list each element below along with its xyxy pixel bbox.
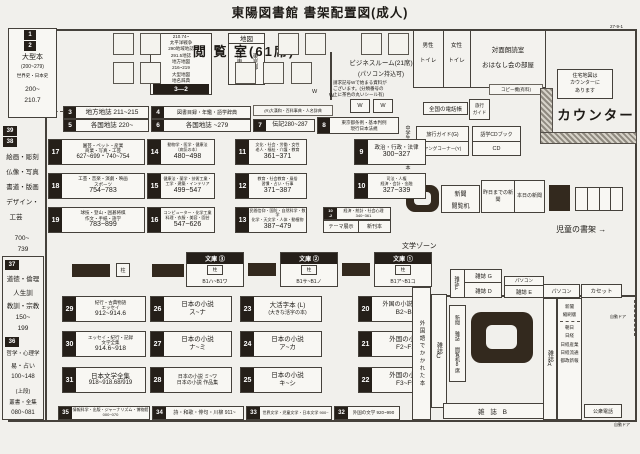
bunko-range: B1ハ~B1ワ bbox=[187, 276, 243, 286]
dark-shelf bbox=[248, 263, 276, 276]
reading-desk bbox=[291, 62, 312, 84]
magazine-f-label: 雑誌F bbox=[450, 269, 465, 298]
shelf-range: ナ~ミ bbox=[189, 344, 206, 352]
shelf-range: 914.6~918 bbox=[95, 345, 126, 353]
shelf-number: 5 bbox=[64, 120, 76, 131]
today-news: 本日の新聞 bbox=[515, 181, 544, 212]
shelf-number: 29 bbox=[63, 297, 76, 321]
shelf-number: 39 bbox=[3, 126, 17, 136]
shelf-number: 10 bbox=[355, 174, 368, 198]
shelf-label: (大きな活字の本) bbox=[268, 310, 306, 316]
shelf-box-19: 19 球技・登山・囲碁将棋作文・手紙・語学783~899 bbox=[48, 207, 145, 233]
shelf-subjects: 教訓・宗教 bbox=[3, 300, 43, 309]
shelf-box-31: 31 日本文学全集918~918.68/919 bbox=[62, 367, 146, 393]
shelf-range: 210.7 bbox=[13, 96, 52, 104]
shelf-box-9: 9 政治・行政・法律300~327 bbox=[354, 139, 426, 165]
bunko-shelf-2: 文庫 ② 柱 B1サ~B1ノ bbox=[280, 252, 338, 287]
shelf-range: (200~279) bbox=[9, 63, 56, 70]
shelf-box-34: 34 詩・和歌・俳句・川柳 911~ bbox=[152, 406, 244, 420]
shelf-range: 754~783 bbox=[89, 187, 116, 195]
newspaper-item: 日経産業 bbox=[561, 342, 579, 347]
shelf-number: 12 bbox=[236, 174, 249, 198]
dark-shelf bbox=[152, 264, 184, 277]
shelf-number: 28 bbox=[151, 368, 164, 392]
shelf-label: 各国地誌 220~ bbox=[76, 120, 148, 131]
dashed-line bbox=[560, 321, 580, 322]
shelf-number: 27 bbox=[151, 332, 164, 356]
shelf-range: 200~ bbox=[13, 85, 52, 93]
reading-desk bbox=[361, 33, 382, 55]
shelf-number: 31 bbox=[63, 368, 76, 392]
magazine-c-shelf: 雑誌C bbox=[431, 294, 447, 408]
shelf-number: 32 bbox=[335, 407, 348, 419]
auto-door bbox=[634, 300, 635, 336]
shelf-range: 547~626 bbox=[174, 221, 201, 229]
shelf-subjects: 書道・版画 bbox=[1, 181, 44, 190]
wall bbox=[8, 420, 637, 422]
reading-desk bbox=[140, 62, 161, 84]
cd-shelf: 語学CDブック CD bbox=[472, 126, 521, 156]
shelf-subjects: 易・占い bbox=[2, 361, 44, 369]
shelf-label: 情報科学・出版・ジャーナリズム・博物館 000~070 bbox=[72, 407, 149, 419]
shelf-label: 各国地誌 ~279 bbox=[164, 120, 250, 131]
pillar-hole bbox=[486, 325, 517, 349]
shelf-subjects: 人生訓 bbox=[3, 287, 43, 296]
pillar-marker: 柱 bbox=[207, 265, 223, 275]
bunko-shelf-1: 文庫 ① 柱 B1ア~B1コ bbox=[374, 252, 432, 287]
shelf-subjects: 仏像・写真 bbox=[1, 166, 44, 175]
children-shelf-label: 児童の書架 bbox=[556, 225, 596, 234]
shelf-number: 35 bbox=[59, 407, 72, 419]
shelf-number: 14 bbox=[148, 140, 161, 164]
empty-shelf-cell bbox=[599, 188, 611, 210]
shelf-box-13: 13 民間信仰・国防・自然科学・数学化学・天文学・人体・動植物387~479 bbox=[235, 207, 307, 233]
newspaper-list-shelf: 新聞 縮刷版 朝日 日経 日経産業 日経流通 都政新報 bbox=[557, 298, 582, 420]
auto-door-label: 自動ドア bbox=[614, 422, 630, 428]
pay-phone: 公衆電話 bbox=[584, 404, 622, 418]
shelf-label: 伝記280~287 bbox=[266, 120, 314, 131]
service-room: 対面朗読室 おはなし会の部屋 bbox=[470, 38, 546, 74]
shelf-label: 大型本 bbox=[10, 52, 55, 61]
shelf-label: 日本の小説 bbox=[271, 372, 304, 380]
room-label: トイレ bbox=[420, 56, 437, 64]
business-room-sub: (パソコン持込可) bbox=[338, 69, 424, 77]
bunko-range: B1ア~B1コ bbox=[375, 276, 431, 286]
magazine-a-shelf: 雑誌A bbox=[543, 298, 557, 420]
pc-label: パソコン bbox=[505, 277, 543, 286]
shelf-range: 783~899 bbox=[89, 221, 116, 229]
empty-shelf bbox=[575, 187, 623, 211]
note-line: あります bbox=[575, 88, 595, 96]
shelf-number: 21 bbox=[359, 332, 372, 356]
library-floor-map: 東陽図書館 書架配置図(成人) 27-9-1 1 2 大型本 (200~279)… bbox=[0, 0, 640, 454]
shelf-subjects: 哲学・心理学 bbox=[2, 349, 44, 357]
shelf-label: 日本の小説 bbox=[271, 336, 304, 344]
shelf-box-6: 6 各国地誌 ~279 bbox=[151, 119, 251, 132]
shelf-range: 912~914.6 bbox=[95, 310, 126, 318]
room-label: おはなし会の部屋 bbox=[482, 59, 534, 69]
shelf-range: 499~547 bbox=[174, 187, 201, 195]
shelf-range: 371~387 bbox=[264, 187, 291, 195]
shelf-range: 080~081 bbox=[2, 409, 44, 417]
shelf-label: 現行日本法規 bbox=[351, 126, 378, 131]
shelf-range: 150~ bbox=[3, 313, 43, 322]
shelf-box-8: 8 東京都条例・基本判例 現行日本法規 bbox=[317, 117, 399, 134]
shelf-number: 25 bbox=[241, 368, 254, 392]
male-toilet: 男性 トイレ bbox=[413, 34, 443, 70]
shelf-subjects: デザイン・ bbox=[1, 196, 44, 205]
w-shelf: W bbox=[350, 99, 370, 113]
shelf-label: 日本の小説 bbox=[181, 336, 214, 344]
shelf-number: 34 bbox=[153, 407, 166, 419]
shelf-box-23: 23 大活字本 (L)(大きな活字の本) bbox=[240, 296, 322, 322]
newspaper-item: 縮刷版 bbox=[563, 312, 577, 317]
counter-label: カウンター bbox=[552, 105, 640, 123]
theme-display-label: テーマ展示 bbox=[324, 221, 359, 232]
auto-door-label: 自動ドア bbox=[610, 314, 626, 320]
shelf-range: 100~148 bbox=[2, 373, 44, 381]
shelf-box-10-2: 10-2 経済・統計・社会心理340~361 bbox=[323, 207, 391, 220]
shelf-box-24: 24 日本の小説ア~カ bbox=[240, 331, 322, 357]
shelf-label: 外国の文学 920~990 bbox=[348, 407, 399, 419]
reference-shelf-label: (R)大漢和・百科事典・人名辞典 bbox=[253, 105, 333, 116]
reading-desk bbox=[113, 33, 134, 55]
reading-desk bbox=[235, 62, 256, 84]
reading-desk bbox=[140, 33, 161, 55]
shelf-number: 30 bbox=[63, 332, 76, 356]
arrow-icon: → bbox=[598, 225, 606, 234]
magazine-g-label: 雑誌 G bbox=[465, 269, 502, 283]
shelf-number: 26 bbox=[151, 297, 164, 321]
reading-desk bbox=[388, 33, 409, 55]
shelf-subjects: 政治・行政・法律 bbox=[374, 145, 418, 152]
shelf-number: 4 bbox=[152, 107, 164, 118]
shelf-range: ス~ナ bbox=[189, 309, 206, 317]
shelf-label: 世界文学・児童文学・日本文学 900~ bbox=[260, 407, 331, 419]
shelf-box-32: 32 外国の文学 920~990 bbox=[334, 406, 400, 420]
foreign-books-shelf: 外国語でかかれた本 bbox=[412, 287, 431, 420]
shelf-box-4: 4 図書目録・年鑑・語学辞典 bbox=[151, 106, 251, 119]
newspaper-item: 都政新報 bbox=[561, 358, 579, 363]
shelf-box-29: 29 紀行・古典物語エッセイ912~914.6 bbox=[62, 296, 146, 322]
literature-zone-label: 文学ゾーン bbox=[402, 241, 437, 251]
shelf-number: 33 bbox=[247, 407, 260, 419]
shelf-subjects: 道徳・倫理 bbox=[3, 273, 43, 282]
shelf-box-25: 25 日本の小説キ~シ bbox=[240, 367, 322, 393]
shelf-number: 10-2 bbox=[324, 208, 337, 219]
page-title: 東陽図書館 書架配置図(成人) bbox=[175, 3, 465, 19]
shelf-range: 327~339 bbox=[383, 187, 410, 195]
shelf-number: 36 bbox=[5, 337, 19, 347]
shelf-range: 199 bbox=[3, 324, 43, 333]
shelf-number: 15 bbox=[148, 174, 161, 198]
newspaper-item: 朝日 bbox=[565, 325, 574, 330]
shelf-number: 1 bbox=[24, 30, 36, 40]
shelf-range: 627~699・740~754 bbox=[76, 154, 129, 161]
pillar-marker: 柱 bbox=[395, 265, 411, 275]
shelf-box-35: 35 情報科学・出版・ジャーナリズム・博物館 000~070 bbox=[58, 406, 150, 420]
shelf-range: 300~327 bbox=[383, 151, 410, 159]
shelf-number: 7 bbox=[254, 120, 266, 131]
newspaper-item: 新聞 bbox=[565, 304, 574, 309]
shelf-number: 9 bbox=[355, 140, 368, 164]
newspaper-rack: 新聞 雑誌 閲覧机8席 bbox=[449, 305, 466, 382]
bunko-title: 文庫 ③ bbox=[187, 253, 243, 264]
magazine-e-label: 雑誌 E bbox=[505, 286, 543, 297]
shelf-number: 11 bbox=[236, 140, 249, 164]
room-label: 男性 bbox=[422, 41, 433, 49]
shelf-range: 387~479 bbox=[264, 223, 291, 231]
yesterday-news: 昨日までの新聞 bbox=[482, 181, 515, 212]
w-mark: W bbox=[312, 89, 317, 95]
reading-desk bbox=[113, 62, 134, 84]
shelf-number: 8 bbox=[318, 118, 330, 133]
housing-map-note: 住宅地図は カウンターに あります bbox=[557, 69, 613, 99]
copier: コピー機(有料) bbox=[489, 84, 543, 95]
dark-shelf bbox=[549, 185, 570, 211]
shelf-range: 700~ bbox=[5, 234, 39, 243]
cassette-shelf: カセット bbox=[581, 284, 622, 298]
empty-shelf-cell bbox=[587, 188, 599, 210]
shelf-range: 739 bbox=[8, 245, 38, 254]
shelf-number: 24 bbox=[241, 332, 254, 356]
shelf-subjects: 絵画・彫刻 bbox=[1, 151, 44, 160]
bunko-shelf-3: 文庫 ③ 柱 B1ハ~B1ワ bbox=[186, 252, 244, 287]
theme-display-shelf: テーマ展示 新刊本 bbox=[323, 220, 391, 233]
shelf-range: ア~カ bbox=[279, 344, 296, 352]
shelf-box-17: 17 園芸・ペット・産業商業・写真・工芸627~699・740~754 bbox=[48, 139, 145, 165]
shelf-number: 18 bbox=[49, 174, 62, 198]
bunko-title: 文庫 ① bbox=[375, 253, 431, 264]
w-shelf: W bbox=[373, 99, 393, 113]
shelf-label: 大活字本 (L) bbox=[270, 302, 306, 310]
shelf-box-10: 10 司法・人権経済・会計・金融327~339 bbox=[354, 173, 426, 199]
pillar-marker: 柱 bbox=[116, 263, 130, 277]
shelf-number: 22 bbox=[359, 368, 372, 392]
note-line: カウンターに bbox=[570, 80, 600, 88]
shelf-box-15: 15 健康法・薬学・技術工業・工学・建築・インテリア499~547 bbox=[147, 173, 215, 199]
magazine-b-shelf: 雑 誌 B bbox=[443, 403, 544, 419]
shelf-box-14: 14 動物学・医学・健康法〔病気の本〕480~498 bbox=[147, 139, 215, 165]
shelf-label: 日本の小説 作品集 bbox=[177, 380, 218, 386]
shelf-number: 16 bbox=[148, 208, 161, 232]
shelf-number-badge: 3—2 bbox=[153, 84, 209, 94]
shelf-range: 340~361 bbox=[356, 214, 372, 219]
shelf-label: 図書目録・年鑑・語学辞典 bbox=[164, 107, 250, 118]
shelf-range: 480~498 bbox=[174, 153, 201, 161]
shelf-number: 37 bbox=[5, 260, 19, 270]
newspaper-shelf: 昨日までの新聞 本日の新聞 bbox=[481, 180, 545, 213]
shelf-range: 361~371 bbox=[264, 153, 291, 161]
reading-desk bbox=[305, 33, 326, 55]
shelf-label: 日本文学全集 bbox=[91, 373, 130, 381]
counter-wall bbox=[540, 132, 637, 144]
note-line: 上に茶色の丸いシール有) bbox=[333, 92, 431, 98]
shelf-label: 詩・和歌・俳句・川柳 911~ bbox=[166, 407, 243, 419]
newspaper-item: 日経流通 bbox=[561, 350, 579, 355]
shelf-number-line: -2 bbox=[329, 214, 333, 218]
shelf-range: キ~シ bbox=[279, 380, 296, 388]
shelf-number: 6 bbox=[152, 120, 164, 131]
shelf-subjects: 工芸 bbox=[1, 211, 31, 220]
magazine-e-shelf: パソコン 雑誌 E bbox=[504, 276, 544, 298]
shelf-box-5: 5 各国地誌 220~ bbox=[63, 119, 149, 132]
shelf-box-26: 26 日本の小説ス~ナ bbox=[150, 296, 232, 322]
room-label: 対面朗読室 bbox=[492, 44, 525, 54]
shelf-box-18: 18 工芸・音楽・演劇・映画スポーツ754~783 bbox=[48, 173, 145, 199]
empty-shelf-cell bbox=[610, 188, 622, 210]
shelf-subjects: 叢書・全集 bbox=[2, 398, 44, 406]
shelf-label: 地方地誌 211~215 bbox=[76, 107, 148, 118]
shelf-number: 20 bbox=[359, 297, 372, 321]
pc-shelf: パソコン bbox=[543, 284, 580, 298]
shelf-box-33: 33 世界文学・児童文学・日本文学 900~ bbox=[246, 406, 332, 420]
newspaper-item: 日経 bbox=[565, 333, 574, 338]
travel-guide-mini: 旅行 ガイド bbox=[469, 99, 490, 120]
shelf-range: 918~918.68/919 bbox=[89, 380, 133, 387]
label-line: ガイド bbox=[473, 110, 487, 116]
shelf-box-12: 12 教育・社会教育・風俗習慣・占い・行事371~387 bbox=[235, 173, 307, 199]
shelf-box-7: 7 伝記280~287 bbox=[253, 119, 315, 132]
dark-shelf bbox=[342, 263, 370, 276]
shelf-label: 日本の小説 bbox=[181, 301, 214, 309]
shelf-box-3: 3 地方地誌 211~215 bbox=[63, 106, 149, 119]
room-label: トイレ bbox=[448, 56, 465, 64]
pillar-marker: 柱 bbox=[301, 265, 317, 275]
shelf-number: 38 bbox=[3, 137, 17, 147]
bunko-range: B1サ~B1ノ bbox=[281, 276, 337, 286]
newspaper-desk: 新聞 閲覧机 bbox=[441, 185, 480, 213]
female-toilet: 女性 トイレ bbox=[443, 34, 470, 70]
room-label: 女性 bbox=[451, 41, 462, 49]
shelf-number: 19 bbox=[49, 208, 62, 232]
label-line: 閲覧机 bbox=[451, 201, 469, 210]
cd-book-label: 語学CDブック bbox=[473, 127, 520, 142]
reading-desk bbox=[263, 62, 284, 84]
shelf-box-16: 16 コンピューター・化学工業料理・衣服・美容・園芸547~626 bbox=[147, 207, 215, 233]
magazine-d-label: 雑誌 D bbox=[465, 283, 502, 298]
cd-label: CD bbox=[473, 142, 520, 155]
shelf-box-27: 27 日本の小説ナ~ミ bbox=[150, 331, 232, 357]
bunko-title: 文庫 ② bbox=[281, 253, 337, 264]
dark-shelf bbox=[72, 264, 110, 277]
shelf-number: 23 bbox=[241, 297, 254, 321]
shelf-subjects: 世界史・日本史 bbox=[8, 73, 57, 79]
reading-desk bbox=[278, 33, 299, 55]
new-books-label: 新刊本 bbox=[359, 221, 390, 232]
shelf-box-11: 11 文化・社会・労働・女性老人・福祉・介護・教育361~371 bbox=[235, 139, 307, 165]
wall bbox=[45, 100, 47, 421]
shelf-number: 3 bbox=[64, 107, 76, 118]
shelf-number: 17 bbox=[49, 140, 62, 164]
empty-shelf-cell bbox=[576, 188, 587, 210]
shelf-note: (上段) bbox=[2, 387, 44, 395]
shelf-box-30: 30 エッセイ・紀行・記録文学全集914.6~918 bbox=[62, 331, 146, 357]
shelf-number: 2 bbox=[24, 41, 36, 51]
phonebook-shelf: 全国の電話帳 bbox=[423, 102, 468, 115]
shelf-box-28: 28 日本の小説 ミ~ワ日本の小説 作品集 bbox=[150, 367, 232, 393]
label-line: 新聞 bbox=[454, 189, 466, 198]
shelf-number: 13 bbox=[236, 208, 249, 232]
children-shelf-sign: 児童の書架 → bbox=[556, 224, 640, 238]
w-mark: W bbox=[329, 93, 334, 99]
